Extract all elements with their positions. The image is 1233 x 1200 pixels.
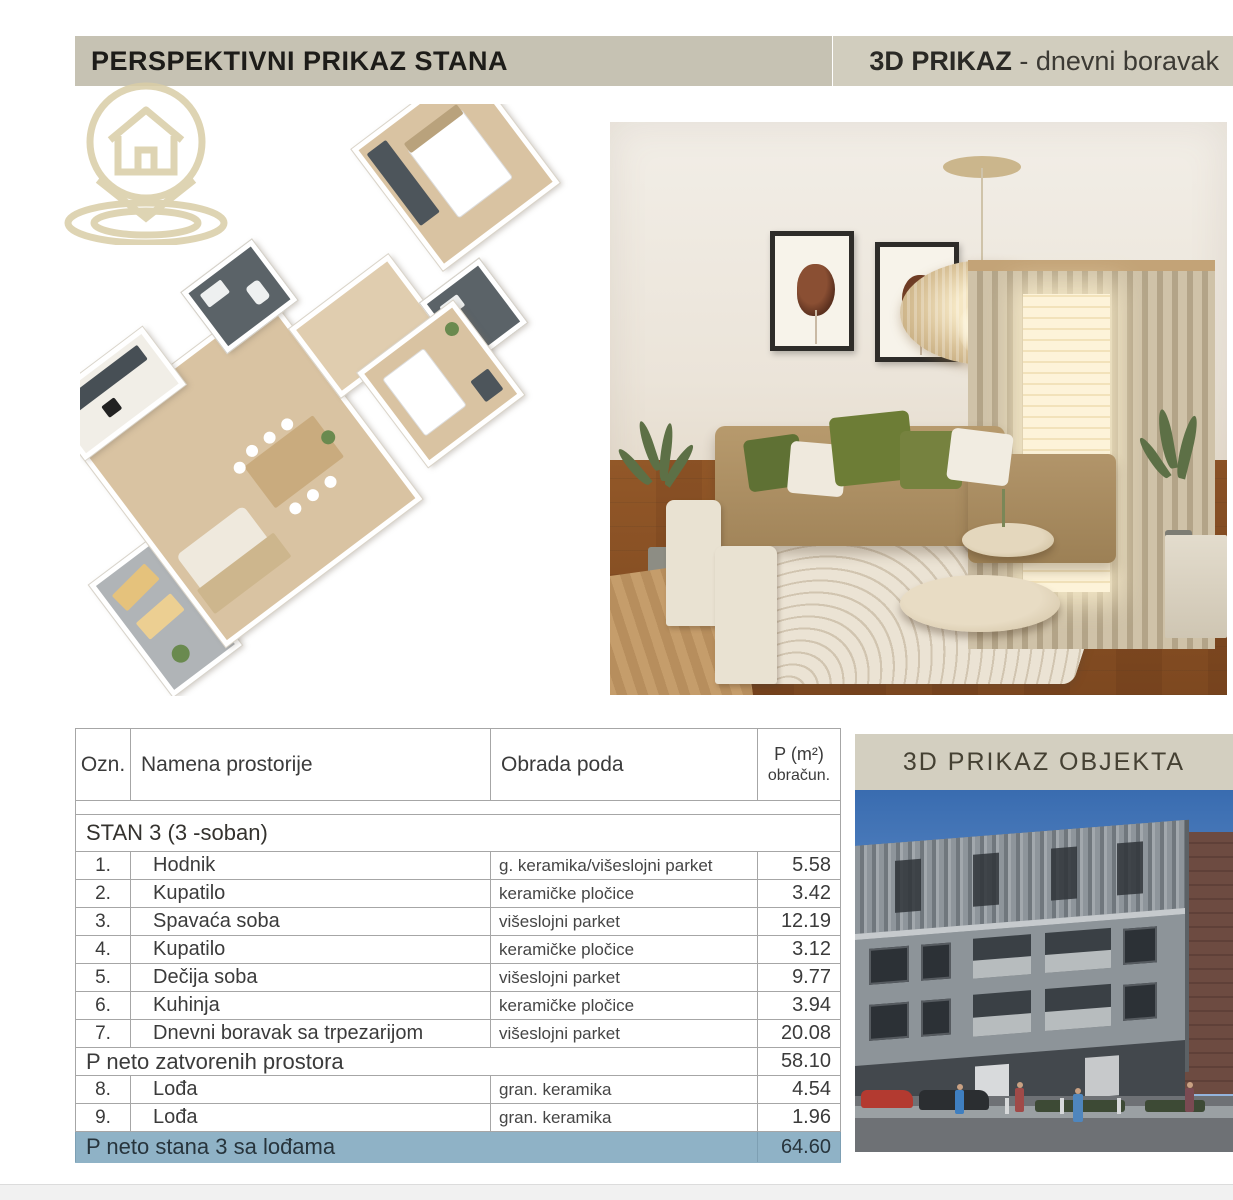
coffee-table-large (900, 575, 1060, 632)
table-row: 3. Spavaća soba višeslojni parket 12.19 (76, 908, 841, 936)
art-stem (815, 310, 817, 344)
building-facade (855, 820, 1185, 1098)
pillow-white (946, 428, 1014, 487)
table-row: 2. Kupatilo keramičke pločice 3.42 (76, 880, 841, 908)
header-left-bar: PERSPEKTIVNI PRIKAZ STANA (75, 36, 832, 86)
row-num: 9. (76, 1104, 131, 1132)
plan-toilet (245, 279, 271, 306)
row-name: Kupatilo (131, 936, 491, 964)
plan-stove (101, 397, 122, 418)
plan-plant (168, 641, 193, 666)
subtotal-label: P neto zatvorenih prostora (76, 1048, 758, 1076)
row-name: Kupatilo (131, 880, 491, 908)
pedestrian (1015, 1088, 1024, 1112)
row-num: 2. (76, 880, 131, 908)
col-name: Namena prostorije (131, 729, 491, 801)
table-header-row: Ozn. Namena prostorije Obrada poda P (m²… (76, 729, 841, 801)
header-right-title-rest: - dnevni boravak (1012, 46, 1219, 77)
row-num: 6. (76, 992, 131, 1020)
bollard (1060, 1098, 1064, 1114)
hedge (1145, 1100, 1205, 1112)
row-num: 7. (76, 1020, 131, 1048)
row-floor: keramičke pločice (491, 936, 758, 964)
plan-chair (322, 474, 339, 491)
col-area-line2: obračun. (760, 766, 838, 786)
row-floor: gran. keramika (491, 1104, 758, 1132)
room-spec-table: Ozn. Namena prostorije Obrada poda P (m²… (75, 728, 841, 1163)
car-red (861, 1090, 913, 1108)
table-row: 7. Dnevni boravak sa trpezarijom višeslo… (76, 1020, 841, 1048)
row-floor: keramičke pločice (491, 992, 758, 1020)
row-name: Hodnik (131, 852, 491, 880)
row-num: 4. (76, 936, 131, 964)
pedestrian (955, 1090, 964, 1114)
plan-lounger (136, 593, 185, 640)
building-render (855, 790, 1233, 1152)
art-abstract-shape (797, 264, 835, 316)
row-area: 3.42 (758, 880, 841, 908)
objekta-header-bar: 3D PRIKAZ OBJEKTA (855, 734, 1233, 790)
col-area-line1: P (m²) (760, 743, 838, 766)
row-floor: višeslojni parket (491, 964, 758, 992)
car-dark (919, 1090, 989, 1110)
bollard (1005, 1098, 1009, 1114)
plan-chair (305, 487, 322, 504)
row-area: 1.96 (758, 1104, 841, 1132)
row-name: Dečija soba (131, 964, 491, 992)
total-row: P neto stana 3 sa lođama 64.60 (76, 1132, 841, 1163)
plan-kids-bed (383, 349, 465, 435)
row-area: 9.77 (758, 964, 841, 992)
plan-bedroom (352, 104, 560, 271)
row-name: Lođa (131, 1076, 491, 1104)
table-row: 6. Kuhinja keramičke pločice 3.94 (76, 992, 841, 1020)
row-num: 1. (76, 852, 131, 880)
row-num: 8. (76, 1076, 131, 1104)
row-area: 20.08 (758, 1020, 841, 1048)
plan-chair (287, 500, 304, 517)
row-floor: g. keramika/višeslojni parket (491, 852, 758, 880)
flyer-page: PERSPEKTIVNI PRIKAZ STANA 3D PRIKAZ - dn… (0, 0, 1233, 1200)
row-floor: višeslojni parket (491, 1020, 758, 1048)
bottom-scroll-strip (0, 1184, 1233, 1200)
living-room-render (610, 122, 1227, 695)
table-row: 4. Kupatilo keramičke pločice 3.12 (76, 936, 841, 964)
dining-chair (715, 546, 777, 684)
col-ozn: Ozn. (76, 729, 131, 801)
row-area: 5.58 (758, 852, 841, 880)
section-row: STAN 3 (3 -soban) (76, 815, 841, 852)
row-name: Dnevni boravak sa trpezarijom (131, 1020, 491, 1048)
plan-lounger (112, 563, 160, 611)
plan-chair (231, 459, 248, 476)
wall-art-left (770, 231, 854, 351)
page-title: PERSPEKTIVNI PRIKAZ STANA (91, 46, 508, 77)
col-floor: Obrada poda (491, 729, 758, 801)
subtotal-area: 58.10 (758, 1048, 841, 1076)
total-area: 64.60 (758, 1132, 841, 1163)
spacer-row (76, 801, 841, 815)
row-name: Kuhinja (131, 992, 491, 1020)
plan-sink (200, 279, 230, 307)
plan-plant (442, 319, 462, 339)
col-area: P (m²) obračun. (758, 729, 841, 801)
row-area: 3.12 (758, 936, 841, 964)
vase-flowers (1002, 489, 1005, 527)
sideboard (1165, 535, 1227, 638)
row-floor: višeslojni parket (491, 908, 758, 936)
table-row: 8. Lođa gran. keramika 4.54 (76, 1076, 841, 1104)
dining-chair (666, 500, 722, 626)
row-area: 12.19 (758, 908, 841, 936)
row-name: Spavaća soba (131, 908, 491, 936)
row-num: 5. (76, 964, 131, 992)
objekta-title: 3D PRIKAZ OBJEKTA (903, 748, 1185, 777)
pedestrian (1073, 1094, 1083, 1122)
pedestrian (1185, 1088, 1194, 1112)
subtotal-row: P neto zatvorenih prostora 58.10 (76, 1048, 841, 1076)
header-right-title-bold: 3D PRIKAZ (869, 46, 1012, 77)
bollard (1117, 1098, 1121, 1114)
row-name: Lođa (131, 1104, 491, 1132)
floor-plan-strip (80, 104, 595, 696)
row-area: 4.54 (758, 1076, 841, 1104)
row-area: 3.94 (758, 992, 841, 1020)
table-row: 9. Lođa gran. keramika 1.96 (76, 1104, 841, 1132)
total-label: P neto stana 3 sa lođama (76, 1132, 758, 1163)
floor-plan-3d (80, 104, 595, 696)
section-label: STAN 3 (3 -soban) (76, 815, 841, 852)
row-floor: keramičke pločice (491, 880, 758, 908)
row-floor: gran. keramika (491, 1076, 758, 1104)
row-num: 3. (76, 908, 131, 936)
header-right-bar: 3D PRIKAZ - dnevni boravak (833, 36, 1233, 86)
table-row: 1. Hodnik g. keramika/višeslojni parket … (76, 852, 841, 880)
table-row: 5. Dečija soba višeslojni parket 9.77 (76, 964, 841, 992)
plan-desk (470, 368, 503, 402)
